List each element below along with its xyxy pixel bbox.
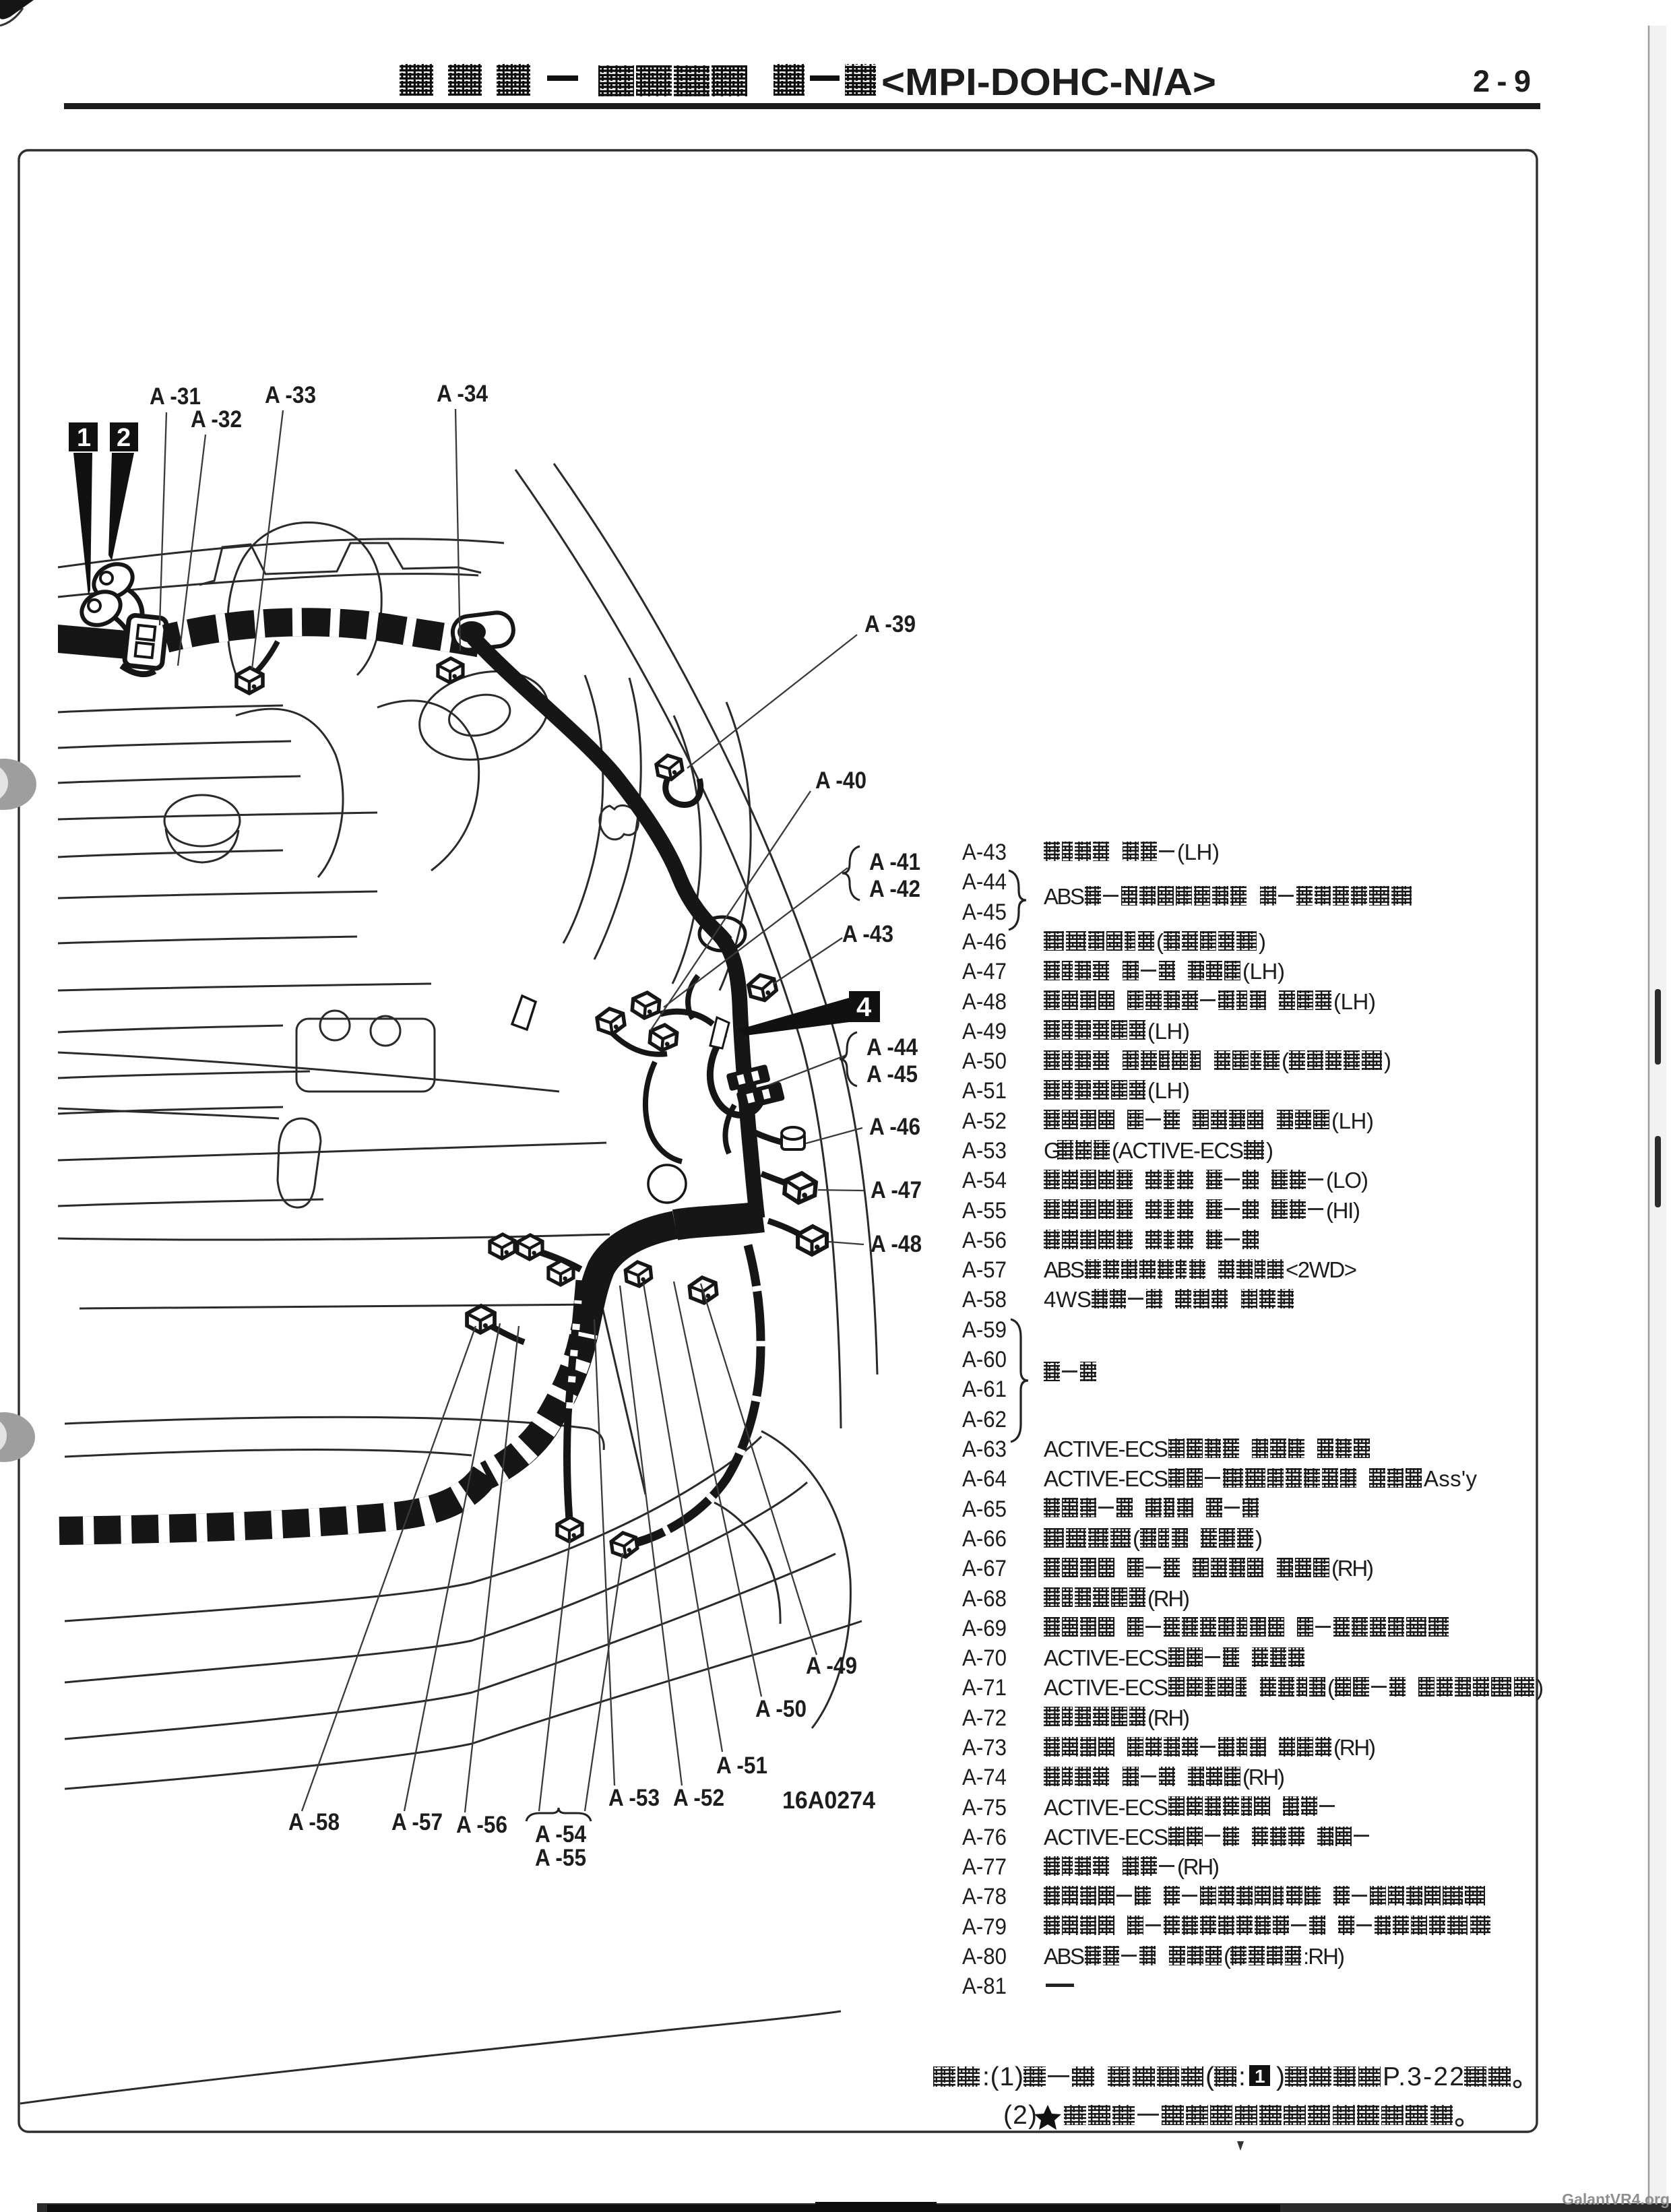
- svg-text:(LH): (LH): [1331, 1108, 1374, 1133]
- svg-text:(LH): (LH): [1177, 840, 1220, 864]
- svg-text:A-59: A-59: [962, 1317, 1007, 1343]
- svg-text:A-44: A-44: [962, 869, 1007, 895]
- svg-text:A -58: A -58: [288, 1809, 340, 1835]
- svg-text:A-69: A-69: [962, 1616, 1007, 1641]
- svg-text:(LH): (LH): [1333, 989, 1376, 1014]
- svg-text:(RH): (RH): [1147, 1705, 1190, 1730]
- svg-text:(: (: [1205, 2062, 1214, 2091]
- svg-text:(LH): (LH): [1147, 1019, 1190, 1044]
- svg-text:A -51: A -51: [716, 1752, 767, 1779]
- svg-text:ACTIVE-ECS: ACTIVE-ECS: [1044, 1795, 1168, 1820]
- svg-text:<MPI-DOHC-N/A>: <MPI-DOHC-N/A>: [881, 61, 1216, 104]
- svg-text:2-9: 2-9: [1473, 64, 1531, 98]
- svg-text:(RH): (RH): [1331, 1556, 1374, 1581]
- svg-text:A-78: A-78: [962, 1884, 1007, 1909]
- svg-text:A-64: A-64: [962, 1466, 1007, 1492]
- svg-text:(RH): (RH): [1177, 1854, 1220, 1879]
- svg-text:A -40: A -40: [815, 767, 866, 794]
- svg-text:A -46: A -46: [869, 1114, 920, 1140]
- svg-text:A-45: A-45: [962, 899, 1007, 925]
- svg-text:A-79: A-79: [962, 1914, 1007, 1940]
- svg-text:A-55: A-55: [962, 1198, 1007, 1224]
- svg-text:A-72: A-72: [962, 1705, 1007, 1731]
- svg-text:(: (: [1156, 929, 1164, 954]
- svg-text:ACTIVE-ECS: ACTIVE-ECS: [1044, 1436, 1168, 1461]
- svg-text:(LH): (LH): [1147, 1078, 1190, 1103]
- svg-text::(1): :(1): [982, 2062, 1023, 2091]
- svg-text:A -54: A -54: [535, 1821, 586, 1847]
- svg-text:A-80: A-80: [962, 1944, 1007, 1969]
- svg-text:A-65: A-65: [962, 1496, 1007, 1522]
- svg-text:A -57: A -57: [391, 1809, 443, 1835]
- svg-text:A-58: A-58: [962, 1287, 1007, 1313]
- svg-text:(LH): (LH): [1242, 959, 1285, 984]
- svg-text:A -32: A -32: [191, 406, 242, 433]
- svg-text:(RH): (RH): [1333, 1735, 1376, 1760]
- svg-text:A -55: A -55: [535, 1845, 586, 1871]
- svg-text:A-50: A-50: [962, 1048, 1007, 1074]
- svg-text:(LO): (LO): [1326, 1168, 1368, 1193]
- svg-text:A -34: A -34: [437, 381, 488, 407]
- svg-text:A-48: A-48: [962, 989, 1007, 1015]
- svg-text:A-75: A-75: [962, 1795, 1007, 1821]
- svg-text:A-61: A-61: [962, 1377, 1007, 1402]
- svg-text:ABS: ABS: [1044, 1944, 1085, 1969]
- svg-text:A-77: A-77: [962, 1854, 1007, 1880]
- svg-text:A -44: A -44: [866, 1034, 918, 1061]
- svg-text:A-46: A-46: [962, 929, 1007, 955]
- svg-text:A -49: A -49: [806, 1653, 857, 1679]
- svg-text::: :: [1238, 2062, 1246, 2091]
- svg-text:A-62: A-62: [962, 1407, 1007, 1432]
- svg-text:(: (: [1224, 1944, 1231, 1969]
- svg-text:GalantVR4.org: GalantVR4.org: [1562, 2190, 1670, 2208]
- svg-text:4WS: 4WS: [1044, 1287, 1092, 1312]
- svg-text:2: 2: [117, 424, 131, 452]
- svg-text:): ): [1276, 2062, 1285, 2091]
- svg-text:A-54: A-54: [962, 1168, 1007, 1193]
- svg-text:(ACTIVE-ECS: (ACTIVE-ECS: [1112, 1138, 1244, 1163]
- svg-text:A -39: A -39: [864, 611, 916, 637]
- svg-text:1: 1: [1255, 2066, 1265, 2087]
- svg-text:A-70: A-70: [962, 1645, 1007, 1671]
- svg-text:A -50: A -50: [755, 1696, 807, 1722]
- svg-text:): ): [1255, 1526, 1263, 1551]
- svg-text:A-81: A-81: [962, 1973, 1007, 1999]
- svg-text:A-67: A-67: [962, 1556, 1007, 1581]
- svg-text:(: (: [1133, 1526, 1140, 1551]
- svg-text:A-60: A-60: [962, 1347, 1007, 1372]
- svg-text:A -42: A -42: [869, 876, 920, 902]
- svg-text:): ): [1384, 1048, 1391, 1073]
- svg-text:A-57: A-57: [962, 1257, 1007, 1283]
- svg-text:A -33: A -33: [265, 382, 316, 408]
- svg-text:A-68: A-68: [962, 1586, 1007, 1612]
- svg-text:(2): (2): [1003, 2101, 1037, 2130]
- svg-text:A-74: A-74: [962, 1765, 1007, 1790]
- svg-text:A -52: A -52: [673, 1785, 724, 1811]
- svg-text:A-47: A-47: [962, 959, 1007, 984]
- svg-text:A-56: A-56: [962, 1228, 1007, 1253]
- svg-text:1: 1: [77, 424, 91, 452]
- svg-text:ABS: ABS: [1044, 884, 1085, 909]
- svg-text:): ): [1266, 1138, 1273, 1163]
- svg-text:A-49: A-49: [962, 1019, 1007, 1044]
- svg-text:<2WD>: <2WD>: [1286, 1257, 1357, 1282]
- svg-text:ACTIVE-ECS: ACTIVE-ECS: [1044, 1825, 1168, 1850]
- svg-text:A-52: A-52: [962, 1108, 1007, 1134]
- svg-text:A-73: A-73: [962, 1735, 1007, 1761]
- svg-text:(: (: [1327, 1675, 1335, 1700]
- svg-text:): ): [1536, 1675, 1544, 1700]
- svg-text:A -43: A -43: [842, 921, 893, 947]
- svg-text:Ass'y: Ass'y: [1424, 1466, 1478, 1491]
- svg-text:): ): [1259, 929, 1266, 954]
- svg-text:ACTIVE-ECS: ACTIVE-ECS: [1044, 1675, 1168, 1700]
- svg-text:A-53: A-53: [962, 1138, 1007, 1164]
- svg-text:A -45: A -45: [866, 1061, 918, 1087]
- svg-text:4: 4: [856, 992, 872, 1022]
- svg-text:A-63: A-63: [962, 1436, 1007, 1462]
- svg-text:ABS: ABS: [1044, 1257, 1085, 1282]
- svg-text:16A0274: 16A0274: [782, 1786, 875, 1814]
- svg-text:A -53: A -53: [608, 1785, 660, 1811]
- svg-text:A-71: A-71: [962, 1675, 1007, 1701]
- svg-text:(HI): (HI): [1326, 1198, 1360, 1223]
- svg-text:(RH): (RH): [1242, 1765, 1285, 1790]
- svg-text:A -56: A -56: [456, 1812, 507, 1838]
- svg-text:A-76: A-76: [962, 1825, 1007, 1850]
- svg-text:(: (: [1282, 1048, 1289, 1073]
- svg-text:(RH): (RH): [1147, 1586, 1190, 1611]
- svg-text:ACTIVE-ECS: ACTIVE-ECS: [1044, 1466, 1168, 1491]
- svg-text::RH): :RH): [1303, 1944, 1345, 1969]
- svg-text:A -47: A -47: [871, 1177, 922, 1203]
- svg-text:P.3-22: P.3-22: [1383, 2062, 1464, 2091]
- svg-text:A-51: A-51: [962, 1078, 1007, 1104]
- svg-text:A -41: A -41: [869, 849, 920, 875]
- svg-text:ACTIVE-ECS: ACTIVE-ECS: [1044, 1645, 1168, 1670]
- svg-text:A -48: A -48: [871, 1231, 922, 1257]
- svg-text:A-66: A-66: [962, 1526, 1007, 1552]
- svg-text:A-43: A-43: [962, 840, 1007, 865]
